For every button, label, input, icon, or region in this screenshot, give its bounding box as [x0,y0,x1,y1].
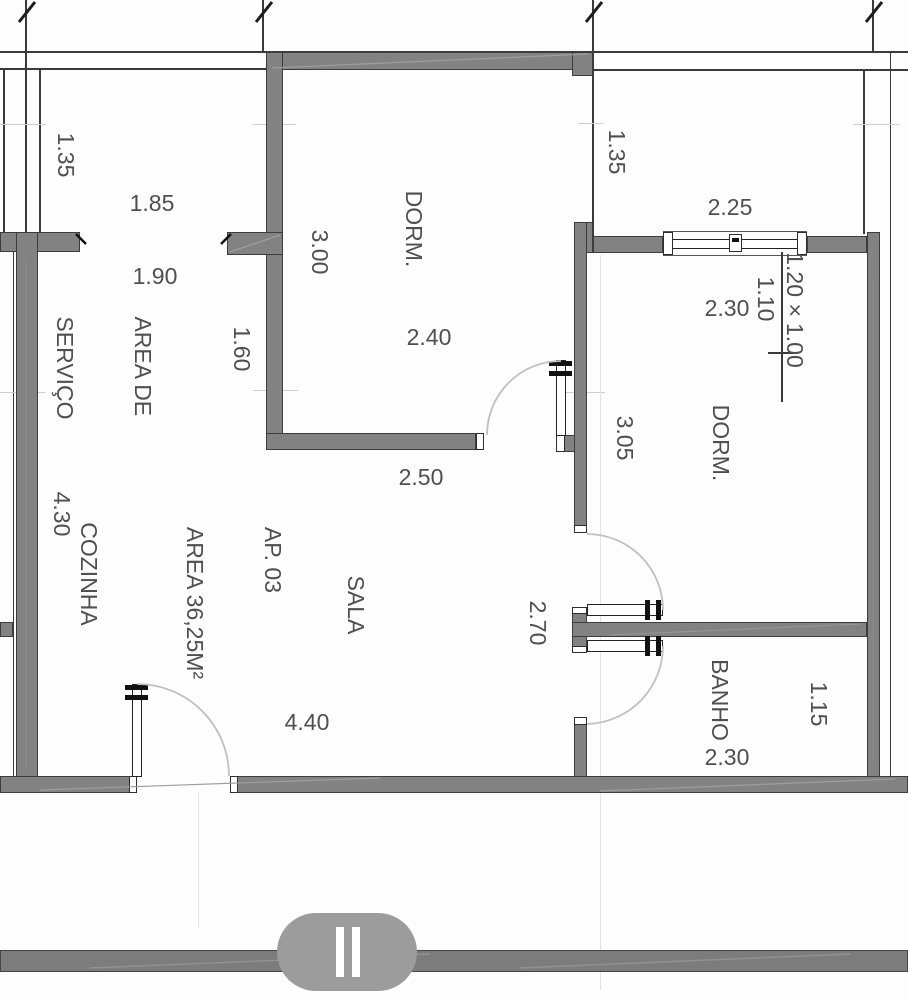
jamb-tick [221,234,231,244]
wall-hatch [272,54,588,68]
wall-hatch [610,624,860,635]
room-label-servico-line2: SERVIÇO [52,316,78,419]
dim-tick [586,2,602,22]
wall-hatch [520,954,850,968]
dim-balcony-left-width: 1.85 [130,190,175,216]
apartment-label: AP. 03 AREA 36,25M² [130,527,338,679]
room-label-sala: SALA [343,576,369,635]
dim-tick [866,2,882,22]
jamb-tick [76,234,86,244]
room-label-dorm-left: DORM. [401,191,427,268]
section-marker-bar [352,927,360,977]
dim-servico-width: 1.90 [133,263,178,289]
door-swing-arc-dorm-left [487,361,561,435]
dim-banho-width: 2.30 [705,744,750,770]
dim-sala-top-width: 2.50 [399,464,444,490]
wall-hatch [230,235,280,252]
drawing-overlay [0,0,908,1000]
room-label-servico-line1: AREA DE [130,316,156,419]
wall-hatch [600,779,895,791]
dim-tick [19,2,35,22]
dim-left-column-height: 4.30 [49,492,75,537]
section-cut-marker [277,913,417,991]
dim-window-wall-width: 2.30 [705,295,750,321]
wall-hatch [40,778,380,790]
room-label-banho: BANHO [707,659,733,741]
dim-dorm-left-width: 2.40 [407,324,452,350]
dim-hall-height: 2.70 [525,601,551,646]
window-note-sill: 1.10 [753,277,779,322]
room-label-dorm-right: DORM. [708,405,734,482]
room-label-servico: AREA DE SERVIÇO [0,316,208,419]
dim-tick [256,2,272,22]
floor-plan: 1.35 1.85 1.90 1.60 4.30 3.00 2.40 2.50 … [0,0,908,1000]
room-label-cozinha: COZINHA [76,522,102,626]
dim-balcony-right-depth: 1.35 [604,130,630,175]
dim-sala-bottom-width: 4.40 [285,709,330,735]
apartment-area: AREA 36,25M² [182,527,208,679]
dim-banho-depth: 1.15 [806,682,832,727]
apartment-number: AP. 03 [260,527,286,679]
dim-dorm-left-height: 3.00 [307,230,333,275]
section-marker-bar [336,927,344,977]
dim-balcony-right-width: 2.25 [708,194,753,220]
dim-balcony-left-depth: 1.35 [53,133,79,178]
window-note-size: 1.20×1.00 [782,252,808,368]
door-swing-arc-entry [137,684,229,776]
door-swing-arc-dorm-right [587,534,663,610]
dim-dorm-right-height: 3.05 [612,416,638,461]
dim-servico-depth: 1.60 [229,327,255,372]
door-swing-arc-banho [587,646,663,724]
